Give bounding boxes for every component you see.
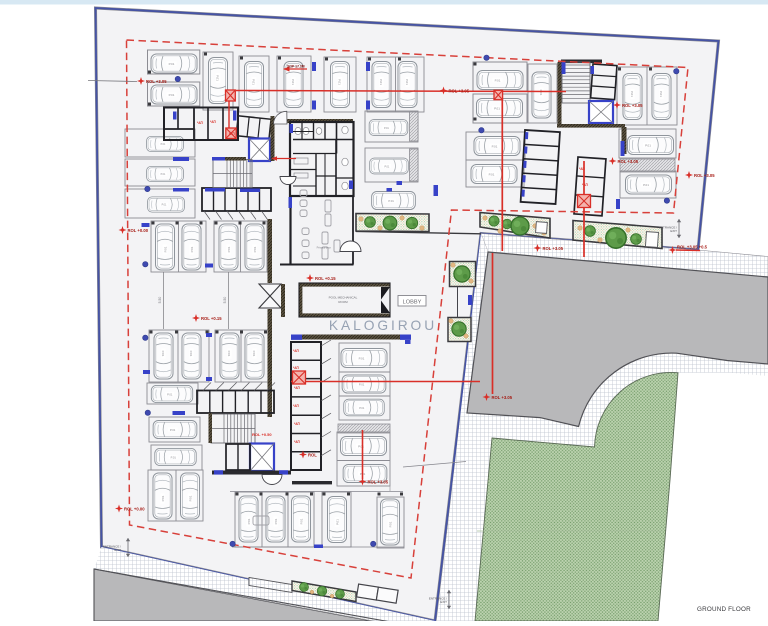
svg-text:GROUND FLOOR: GROUND FLOOR bbox=[697, 606, 751, 613]
svg-text:ΧΩΡ 17.3Μ: ΧΩΡ 17.3Μ bbox=[287, 65, 305, 69]
svg-text:ROL +3.05: ROL +3.05 bbox=[622, 103, 643, 108]
svg-text:ROL +3.05: ROL +3.05 bbox=[146, 79, 167, 84]
svg-text:ROL +0.15: ROL +0.15 bbox=[201, 316, 222, 321]
svg-text:*AΠ: *AΠ bbox=[293, 366, 300, 370]
svg-text:KALOGIROU: KALOGIROU bbox=[329, 318, 437, 333]
svg-text:EXIT: EXIT bbox=[440, 600, 447, 604]
svg-text:ROL +0.00: ROL +0.00 bbox=[128, 228, 149, 233]
svg-text:ROOM: ROOM bbox=[338, 300, 348, 304]
svg-text:*AΠ: *AΠ bbox=[293, 404, 300, 408]
svg-text:EXIT: EXIT bbox=[670, 229, 677, 233]
svg-text:ROL +0.50: ROL +0.50 bbox=[252, 432, 272, 437]
svg-text:ROL +3.05: ROL +3.05 bbox=[449, 89, 470, 94]
svg-text:*AΠ: *AΠ bbox=[293, 349, 300, 353]
svg-text:*AΠ: *AΠ bbox=[294, 440, 301, 444]
svg-text:*AΠ: *AΠ bbox=[294, 386, 301, 390]
svg-text:LOBBY: LOBBY bbox=[403, 300, 422, 306]
svg-text:5.50: 5.50 bbox=[158, 297, 162, 304]
svg-text:5.50: 5.50 bbox=[223, 297, 227, 304]
svg-text:EXIT: EXIT bbox=[114, 548, 121, 552]
svg-text:*AΠ: *AΠ bbox=[294, 422, 301, 426]
svg-text:ROL +3.05 +0.5: ROL +3.05 +0.5 bbox=[677, 245, 708, 250]
svg-text:*AΠ: *AΠ bbox=[210, 120, 217, 124]
svg-text:ROL +0.00: ROL +0.00 bbox=[124, 507, 145, 512]
svg-text:ROL +3.05: ROL +3.05 bbox=[543, 246, 564, 251]
svg-text:ROL +0.15: ROL +0.15 bbox=[315, 276, 336, 281]
svg-text:Privacy door: Privacy door bbox=[317, 246, 332, 250]
svg-text:*AΠ: *AΠ bbox=[579, 167, 586, 171]
svg-text:ROL +3.05: ROL +3.05 bbox=[694, 173, 715, 178]
svg-text:ROL +3.05: ROL +3.05 bbox=[618, 159, 639, 164]
svg-text:ROL +3.05: ROL +3.05 bbox=[492, 395, 513, 400]
svg-text:POOL MECHANICAL: POOL MECHANICAL bbox=[329, 296, 358, 300]
svg-text:*AΠ: *AΠ bbox=[582, 183, 589, 187]
svg-text:*AΠ: *AΠ bbox=[229, 132, 236, 136]
svg-text:ROL +3.05: ROL +3.05 bbox=[368, 480, 389, 485]
svg-text:ROL: ROL bbox=[308, 453, 317, 458]
svg-text:*AΠ: *AΠ bbox=[197, 121, 204, 125]
